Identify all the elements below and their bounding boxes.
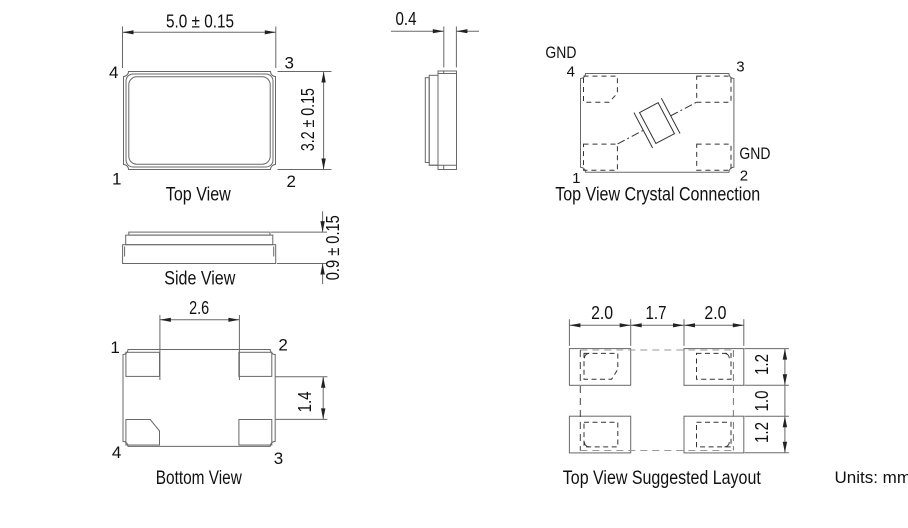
svg-text:1.4: 1.4 [295,391,315,412]
svg-text:Top View Suggested Layout: Top View Suggested Layout [563,468,762,489]
svg-text:0.4: 0.4 [396,9,417,29]
svg-text:3: 3 [274,449,283,468]
svg-text:2.6: 2.6 [189,298,209,318]
svg-text:2.0: 2.0 [591,303,613,323]
svg-text:5.0 ± 0.15: 5.0 ± 0.15 [166,12,234,32]
svg-text:1.0: 1.0 [752,391,772,412]
svg-text:4: 4 [112,443,121,462]
svg-text:1: 1 [112,170,121,189]
svg-text:Top View Crystal Connection: Top View Crystal Connection [555,185,760,206]
svg-text:1.2: 1.2 [752,354,772,375]
svg-text:0.9 ± 0.15: 0.9 ± 0.15 [323,215,343,280]
svg-text:2: 2 [740,167,748,184]
svg-text:4: 4 [109,63,118,82]
svg-text:Units: mm: Units: mm [835,468,908,487]
svg-text:Side View: Side View [164,268,235,289]
svg-text:3.2 ± 0.15: 3.2 ± 0.15 [298,88,318,151]
svg-text:1: 1 [110,338,119,357]
svg-text:GND: GND [739,145,770,163]
svg-text:4: 4 [567,63,575,80]
svg-text:3: 3 [736,59,744,76]
svg-text:GND: GND [545,44,576,62]
svg-text:1.7: 1.7 [646,303,667,323]
svg-text:1.2: 1.2 [752,422,772,443]
svg-text:3: 3 [285,54,294,73]
svg-text:2.0: 2.0 [704,303,726,323]
svg-text:Bottom View: Bottom View [156,468,242,489]
svg-text:2: 2 [278,336,287,355]
svg-text:2: 2 [287,172,296,191]
svg-text:Top View: Top View [166,185,231,206]
